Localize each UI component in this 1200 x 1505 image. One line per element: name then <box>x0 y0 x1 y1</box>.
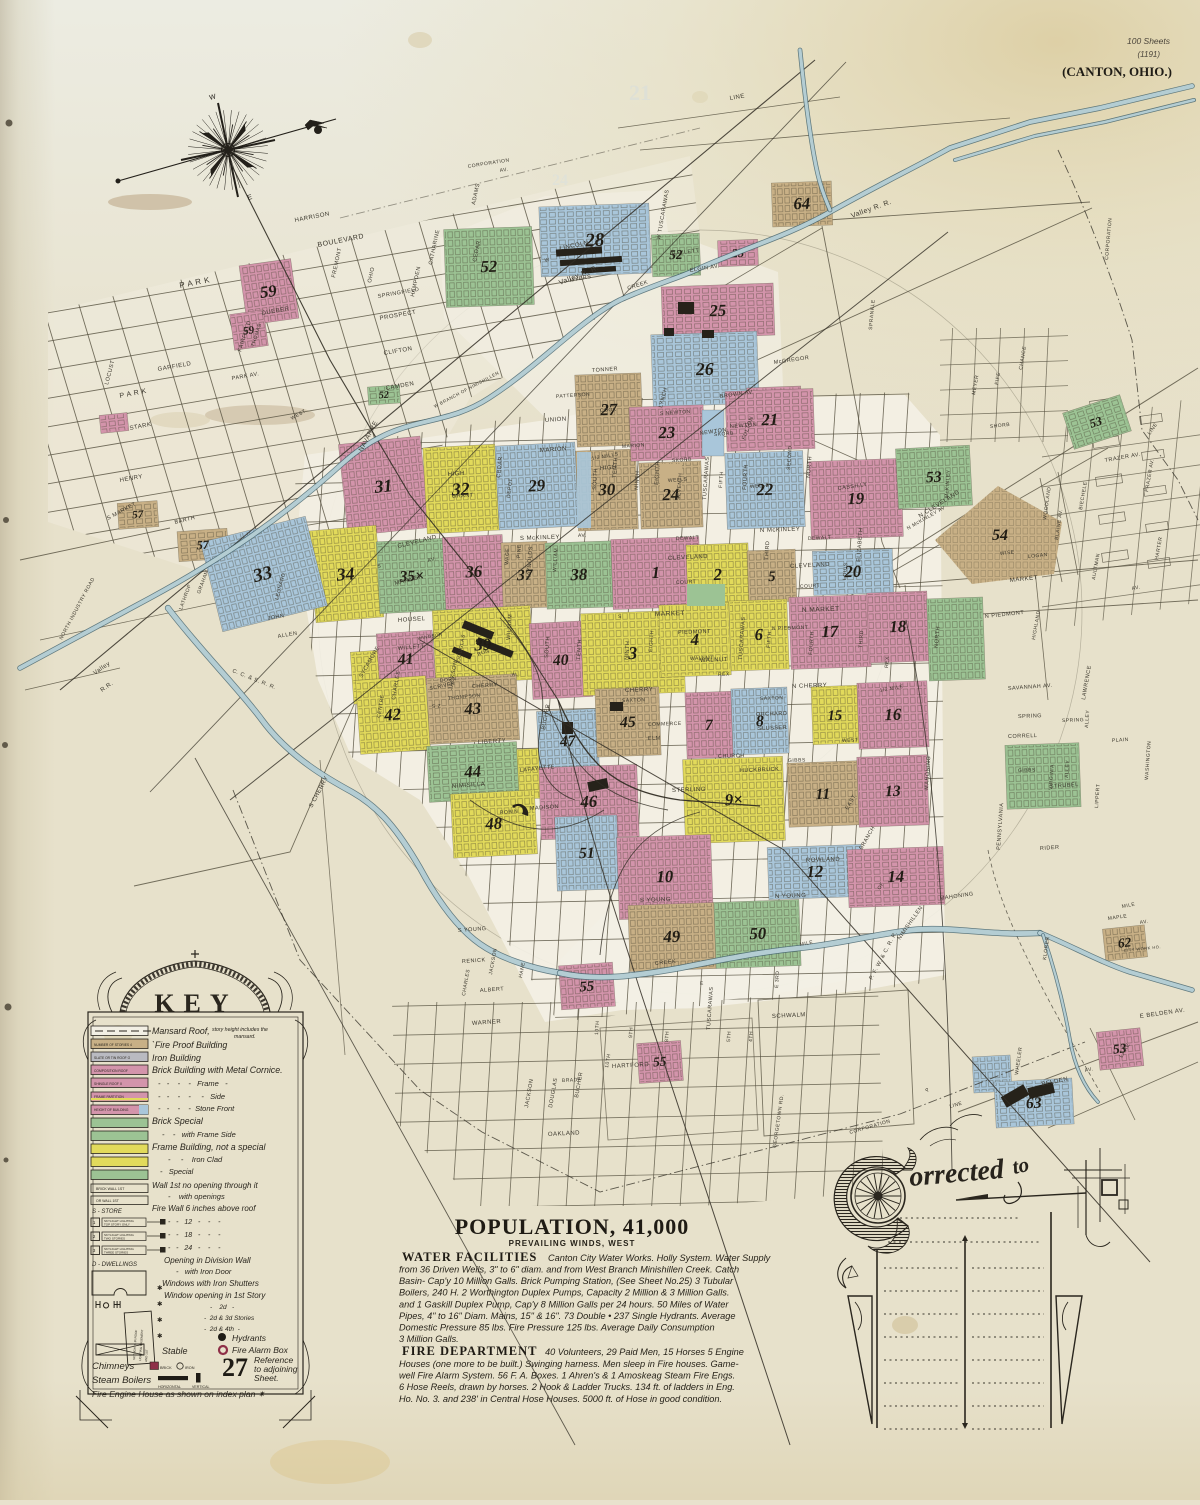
svg-text:WALNUT: WALNUT <box>690 655 714 662</box>
svg-text:44: 44 <box>463 762 482 782</box>
svg-text:S: S <box>618 614 622 620</box>
svg-text:SHINGLE ROOF X: SHINGLE ROOF X <box>94 1082 123 1086</box>
svg-text:COMPOSITION ROOF: COMPOSITION ROOF <box>94 1069 128 1073</box>
svg-text:AV.: AV. <box>578 533 587 539</box>
svg-text:- with openings: - with openings <box>168 1192 225 1201</box>
svg-text:59: 59 <box>259 281 279 302</box>
svg-text:Steam Boilers: Steam Boilers <box>92 1375 151 1386</box>
svg-text:100 Sheets: 100 Sheets <box>1127 36 1171 46</box>
svg-text:31: 31 <box>372 475 393 497</box>
svg-text:IRON: IRON <box>185 1366 195 1370</box>
svg-text:S Z: S Z <box>432 703 442 710</box>
svg-text:- 2d & 3d Stories: - 2d & 3d Stories <box>204 1315 255 1322</box>
svg-text:(CANTON, OHIO.): (CANTON, OHIO.) <box>1062 64 1172 79</box>
svg-text:14: 14 <box>887 867 904 887</box>
svg-text:N CHERRY: N CHERRY <box>792 683 827 690</box>
svg-text:- - 18 - - -: - - 18 - - - <box>168 1232 221 1239</box>
svg-text:13: 13 <box>885 783 901 801</box>
svg-text:and 1 Gaskill Duplex Pump, Cap: and 1 Gaskill Duplex Pump, Cap'y 8 Milli… <box>399 1299 729 1309</box>
svg-text:- 2d -: - 2d - <box>210 1304 235 1311</box>
svg-text:Houses (one more to be built.): Houses (one more to be built.) Swinging … <box>399 1359 739 1369</box>
svg-text:MARKET: MARKET <box>655 610 685 618</box>
svg-text:54: 54 <box>992 527 1008 544</box>
svg-text:✱: ✱ <box>157 1300 163 1308</box>
svg-text:8TH: 8TH <box>664 1031 671 1042</box>
svg-text:PLAIN: PLAIN <box>1112 737 1129 744</box>
svg-text:THREE STORIES: THREE STORIES <box>104 1250 128 1254</box>
svg-text:✱: ✱ <box>157 1316 163 1324</box>
svg-text:17: 17 <box>821 622 839 642</box>
svg-text:55: 55 <box>579 979 595 996</box>
svg-text:Ho. No. 3. and 238' in Central: Ho. No. 3. and 238' in Central Hose Hous… <box>399 1394 722 1404</box>
svg-text:SPRING: SPRING <box>1018 713 1042 720</box>
svg-text:FIFTH: FIFTH <box>766 631 773 648</box>
svg-text:42: 42 <box>383 704 402 724</box>
svg-text:18: 18 <box>889 617 907 637</box>
svg-text:(1191): (1191) <box>1137 50 1160 59</box>
svg-text:ROWLAND: ROWLAND <box>806 857 841 864</box>
svg-text:36: 36 <box>464 562 483 582</box>
svg-text:✱: ✱ <box>157 1332 163 1340</box>
svg-text:SLUSSER: SLUSSER <box>758 725 787 732</box>
svg-text:10TH: 10TH <box>594 1021 601 1036</box>
svg-text:E 3RD: E 3RD <box>774 971 781 989</box>
svg-text:Opening in Division Wall: Opening in Division Wall <box>164 1256 251 1265</box>
svg-text:TWO STORIES: TWO STORIES <box>104 1236 125 1240</box>
svg-text:Hydrants: Hydrants <box>232 1333 267 1343</box>
svg-text:CORRELL: CORRELL <box>1008 733 1038 740</box>
svg-text:Window opening in 1st Story: Window opening in 1st Story <box>164 1291 266 1300</box>
svg-text:- - Iron Clad: - - Iron Clad <box>168 1155 223 1164</box>
svg-text:9TH: 9TH <box>628 1027 635 1038</box>
svg-text:- - 24 - - -: - - 24 - - - <box>168 1245 221 1252</box>
svg-text:FIRE DEPARTMENT: FIRE DEPARTMENT <box>402 1344 538 1358</box>
svg-text:6 Hose Reels, drawn by horses.: 6 Hose Reels, drawn by horses. 2 Hook & … <box>399 1382 735 1392</box>
svg-text:WEST: WEST <box>842 737 859 744</box>
svg-text:21: 21 <box>629 80 651 105</box>
svg-text:WATER FACILITIES: WATER FACILITIES <box>402 1250 537 1264</box>
svg-text:- - with Frame Side: - - with Frame Side <box>162 1130 236 1139</box>
svg-text:CHURCH: CHURCH <box>718 753 745 760</box>
svg-text:E: E <box>700 981 704 987</box>
svg-text:- - - - - Side: - - - - - Side <box>158 1092 225 1101</box>
svg-text:STERLING: STERLING <box>672 787 706 794</box>
svg-text:well Fire Alarm System. 56 F.: well Fire Alarm System. 56 F. A. Boxes. … <box>399 1371 735 1381</box>
svg-text:POPULATION, 41,000: POPULATION, 41,000 <box>455 1214 690 1239</box>
svg-text:45: 45 <box>619 714 636 732</box>
svg-text:34: 34 <box>335 563 356 585</box>
svg-text:NUMBER OF STORIES 4: NUMBER OF STORIES 4 <box>94 1043 132 1047</box>
svg-text:Fire Wall 6 inches above roof: Fire Wall 6 inches above roof <box>152 1204 256 1213</box>
svg-text:ELM: ELM <box>648 736 661 742</box>
svg-text:- with Iron Door: - with Iron Door <box>176 1267 232 1276</box>
svg-text:KEY: KEY <box>154 989 237 1018</box>
svg-text:63: 63 <box>1025 1095 1042 1113</box>
svg-text:OR WALL 1ST: OR WALL 1ST <box>96 1199 120 1203</box>
svg-text:- - - - Stone Front: - - - - Stone Front <box>158 1104 235 1113</box>
svg-text:- - - - Frame -: - - - - Frame - <box>158 1079 228 1088</box>
svg-text:COURT: COURT <box>800 583 820 590</box>
svg-text:D - DWELLINGS: D - DWELLINGS <box>92 1262 137 1268</box>
svg-text:5TH: 5TH <box>726 1031 733 1042</box>
svg-text:Domestic Pressure 85 lbs. Fi: Domestic Pressure 85 lbs. Fire Pressure … <box>399 1323 715 1333</box>
svg-text:DEWALT: DEWALT <box>808 535 832 542</box>
svg-text:46: 46 <box>579 792 598 812</box>
svg-text:FIFTH: FIFTH <box>718 471 725 488</box>
svg-text:38: 38 <box>569 565 588 585</box>
svg-text:10: 10 <box>656 867 674 887</box>
svg-text:3 Million Galls.: 3 Million Galls. <box>399 1334 459 1344</box>
svg-text:Wall 1st no opening through i: Wall 1st no opening through it <box>152 1181 258 1190</box>
svg-text:LOUIS: LOUIS <box>842 562 849 580</box>
svg-text:ALLEY: ALLEY <box>1084 710 1091 729</box>
svg-text:ROBIN: ROBIN <box>500 809 519 816</box>
svg-text:2: 2 <box>712 565 722 584</box>
svg-text:THIRD: THIRD <box>858 630 865 648</box>
svg-text:9×: 9× <box>725 790 744 810</box>
svg-text:43: 43 <box>463 699 482 719</box>
svg-text:6: 6 <box>754 625 764 644</box>
svg-text:WAGE: WAGE <box>504 548 511 566</box>
svg-text:57: 57 <box>132 509 144 522</box>
svg-text:Chimneys: Chimneys <box>92 1361 134 1372</box>
svg-text:11: 11 <box>815 786 830 804</box>
svg-text:21: 21 <box>760 410 778 430</box>
svg-text:53: 53 <box>925 469 942 487</box>
svg-text:HIGH: HIGH <box>448 471 465 478</box>
svg-text:27: 27 <box>222 1353 248 1382</box>
svg-text:52: 52 <box>480 257 497 277</box>
svg-text:Mansard Roof,: Mansard Roof, <box>152 1026 210 1036</box>
svg-text:- Special: - Special <box>160 1167 194 1176</box>
svg-text:N MARKET: N MARKET <box>802 606 840 614</box>
svg-text:HEIGHT OF BUILDING: HEIGHT OF BUILDING <box>94 1108 129 1112</box>
svg-text:40 Volunteers, 29 Paid Men, 15: 40 Volunteers, 29 Paid Men, 15 Horses 5 … <box>545 1347 744 1357</box>
svg-text:COURT: COURT <box>676 579 696 586</box>
svg-text:TOP STORY ONLY: TOP STORY ONLY <box>104 1222 130 1226</box>
svg-text:- 2d & 4th -: - 2d & 4th - <box>204 1326 241 1333</box>
svg-text:ALLEY: ALLEY <box>1064 760 1071 779</box>
svg-text:Frame Building, not a special: Frame Building, not a special <box>152 1142 266 1152</box>
svg-text:Fire Engine House as shown on: Fire Engine House as shown on index plan… <box>92 1389 266 1399</box>
svg-text:5: 5 <box>768 569 776 585</box>
svg-text:Pipes, 4" to 16" Diam. Mains,: Pipes, 4" to 16" Diam. Mains, 15" & 16".… <box>399 1311 735 1321</box>
svg-text:GIBBS: GIBBS <box>1018 767 1036 774</box>
svg-text:from 36 Driven Wells, 3" to 6": from 36 Driven Wells, 3" to 6" diam. and… <box>399 1265 739 1275</box>
svg-text:Brick Special: Brick Special <box>152 1116 204 1126</box>
svg-text:CHERRY: CHERRY <box>625 687 653 694</box>
svg-text:COMMERCE: COMMERCE <box>648 721 682 728</box>
svg-text:N YOUNG: N YOUNG <box>775 893 807 900</box>
svg-text:50: 50 <box>749 924 767 944</box>
svg-text:SPRING: SPRING <box>1062 717 1084 724</box>
svg-text:Stable: Stable <box>162 1346 188 1356</box>
svg-text:PREVAILING WINDS, WEST: PREVAILING WINDS, WEST <box>509 1239 636 1248</box>
svg-text:AL.: AL. <box>512 671 521 677</box>
svg-text:S YOUNG: S YOUNG <box>640 897 671 904</box>
svg-text:GIBBS: GIBBS <box>788 757 806 764</box>
svg-text:Canton City Water Works. Holly: Canton City Water Works. Holly System. W… <box>548 1253 772 1263</box>
svg-text:49: 49 <box>662 927 681 947</box>
svg-text:26: 26 <box>695 359 715 380</box>
svg-text:51: 51 <box>579 845 595 863</box>
svg-text:19: 19 <box>847 489 865 509</box>
svg-text:DEWALT: DEWALT <box>676 535 700 542</box>
svg-text:Windows with Iron Shutters: Windows with Iron Shutters <box>162 1279 259 1288</box>
svg-text:Boilers, 240 H. 2 Worthington: Boilers, 240 H. 2 Worthington Duplex Pum… <box>399 1288 729 1298</box>
svg-text:25: 25 <box>708 301 726 321</box>
svg-text:SLATE OR TIN ROOF O: SLATE OR TIN ROOF O <box>94 1056 131 1060</box>
svg-text:1: 1 <box>651 563 660 582</box>
svg-text:40: 40 <box>551 652 569 670</box>
svg-text:24: 24 <box>552 172 568 189</box>
svg-text:REX: REX <box>718 672 730 678</box>
svg-text:64: 64 <box>793 194 810 214</box>
svg-text:SAXTON: SAXTON <box>622 697 646 704</box>
svg-text:COOK: COOK <box>600 407 617 414</box>
svg-text:57: 57 <box>196 538 210 553</box>
svg-text:`Fire Proof Building: `Fire Proof Building <box>152 1040 227 1050</box>
svg-text:BRICK WALL 1ST: BRICK WALL 1ST <box>96 1187 125 1191</box>
svg-text:Basin- Cap'y 10 Million Galls.: Basin- Cap'y 10 Million Galls. Brick Pum… <box>399 1276 734 1286</box>
svg-text:Brick Building with Metal Corn: Brick Building with Metal Cornice. <box>152 1065 283 1075</box>
svg-text:story height includes the: story height includes the <box>212 1027 268 1033</box>
svg-text:15: 15 <box>827 708 842 724</box>
svg-text:Iron Building: Iron Building <box>152 1053 201 1063</box>
svg-text:ORCHARD: ORCHARD <box>756 711 788 718</box>
svg-text:BRICK: BRICK <box>160 1366 172 1370</box>
svg-text:S - STORE: S - STORE <box>92 1209 123 1215</box>
svg-text:23: 23 <box>657 423 675 443</box>
svg-text:48: 48 <box>484 814 503 834</box>
svg-text:PIEDMONT: PIEDMONT <box>678 629 711 636</box>
svg-text:- - 12 - - -: - - 12 - - - <box>168 1219 221 1226</box>
svg-text:PINE: PINE <box>516 544 523 558</box>
svg-text:REX: REX <box>884 656 891 668</box>
svg-text:SAXTON: SAXTON <box>760 695 784 702</box>
svg-text:AV.: AV. <box>1139 919 1148 926</box>
svg-text:29: 29 <box>527 476 546 496</box>
svg-text:N PIEDMONT: N PIEDMONT <box>772 625 809 632</box>
svg-text:16: 16 <box>884 705 902 725</box>
svg-text:mansard.: mansard. <box>234 1034 256 1040</box>
svg-text:Sheet.: Sheet. <box>254 1373 279 1383</box>
svg-text:4TH: 4TH <box>748 1031 755 1042</box>
